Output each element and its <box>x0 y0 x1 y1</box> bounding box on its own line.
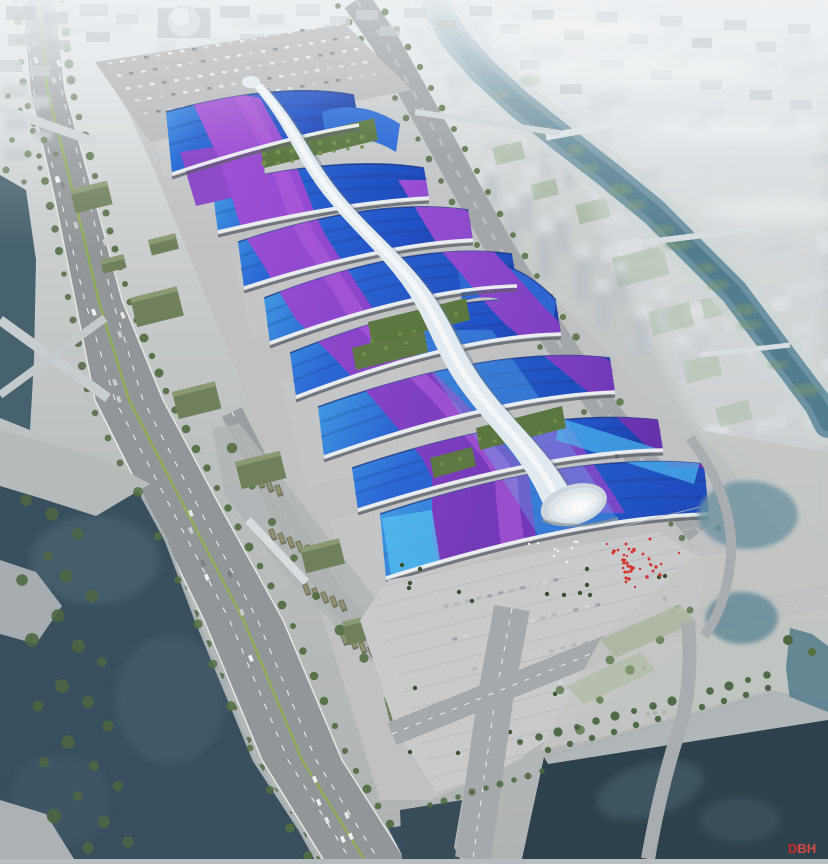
svg-text:DBH: DBH <box>788 841 816 856</box>
